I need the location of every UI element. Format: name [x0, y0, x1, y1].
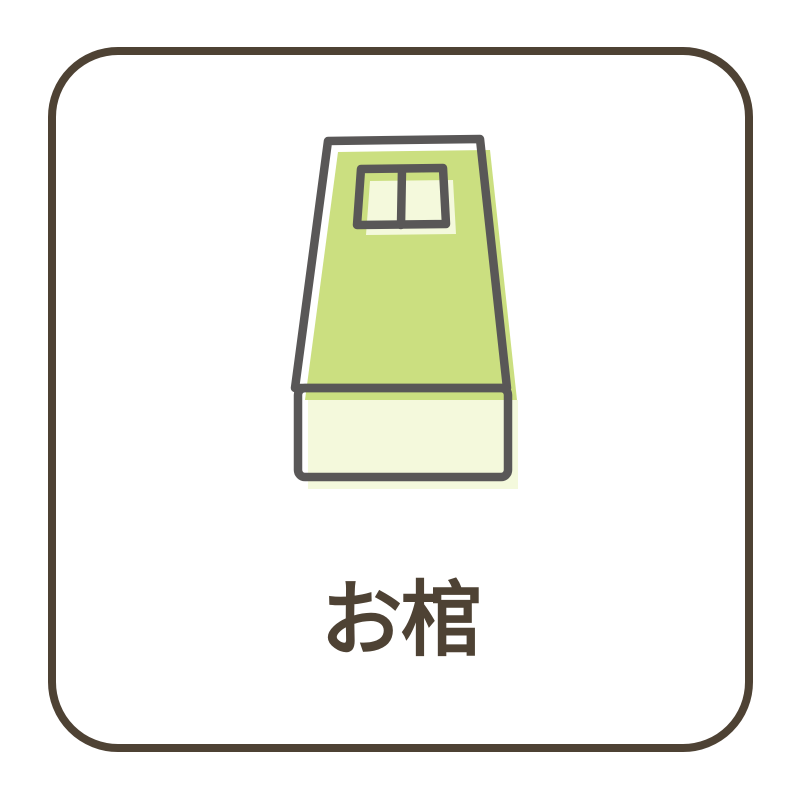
coffin-icon: [0, 0, 800, 800]
card-label: お棺: [48, 580, 753, 662]
icon-card-stage: お棺: [0, 0, 800, 800]
coffin-window-divider: [401, 169, 402, 225]
